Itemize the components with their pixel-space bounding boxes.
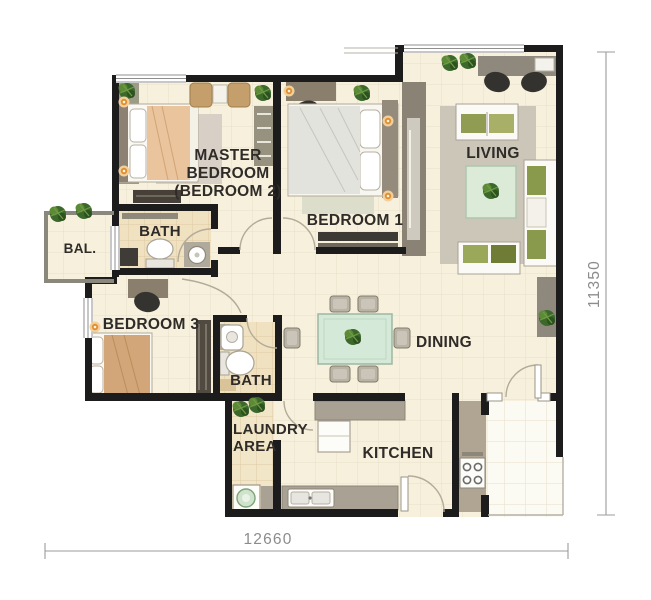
label-bath-2: BATH [230,372,272,389]
dining-chair [358,296,378,312]
window-bedroom3 [83,298,93,338]
wall-lamp-icon [284,86,295,97]
wall-lamp-icon [383,116,394,127]
dining-chair [358,366,378,382]
tv-console [318,232,398,241]
towel-rack [122,213,178,219]
sofa-top [456,104,518,140]
window-master [116,74,186,83]
laundry-counter [261,486,273,510]
dining-chair [394,328,410,348]
floor-plan-svg: MASTER BEDROOM (BEDROOM 2) BEDROOM 1 LIV… [0,0,651,600]
dimension-width-value: 12660 [243,531,292,548]
floor-plan-image: MASTER BEDROOM (BEDROOM 2) BEDROOM 1 LIV… [0,0,651,600]
window-balcony-slider [110,226,120,270]
double-bed [288,100,398,198]
wall-lamp-icon [90,322,101,333]
kitchen-counter [315,401,405,420]
side-cabinet [537,277,558,337]
label-balcony: BAL. [64,241,97,256]
label-bedroom-3: BEDROOM 3 [103,316,200,333]
dining-chair [330,366,350,382]
room-laundry [233,485,273,511]
sink-icon [220,324,243,350]
armchairs [190,83,250,107]
sliding-panel [407,118,420,240]
sofa-right [524,160,557,266]
label-master-line1: MASTER [194,147,261,164]
door-leaf-kitchen [401,477,408,511]
label-laundry-line1: LAUNDRY [233,421,308,438]
label-living: LIVING [466,145,519,162]
sink-icon [288,489,334,507]
label-bath-master: BATH [139,223,181,240]
sofa-bottom [458,242,520,274]
door-sill [487,393,502,401]
dining-chair [330,296,350,312]
dimension-line-bottom [45,543,568,559]
dimension-height-value: 11350 [586,260,603,308]
wall-lamp-icon [119,97,130,108]
wall-lamp-icon [119,166,130,177]
label-master-line3: (BEDROOM 2) [174,183,282,200]
window-living [404,44,524,53]
label-master-line2: BEDROOM [186,165,269,182]
door-leaf-entrance [535,365,541,398]
exterior-ledge [344,48,398,53]
sink-icon [184,242,210,267]
label-bedroom-1: BEDROOM 1 [307,212,404,229]
wall-lamp-icon [383,191,394,202]
toilet-icon [146,239,174,268]
washing-machine-icon [233,485,260,511]
console-item [535,58,554,71]
dining-chair [284,328,300,348]
label-dining: DINING [416,334,472,351]
single-bed [88,333,152,397]
label-kitchen: KITCHEN [363,445,434,462]
label-laundry-line2: AREA [233,438,277,455]
